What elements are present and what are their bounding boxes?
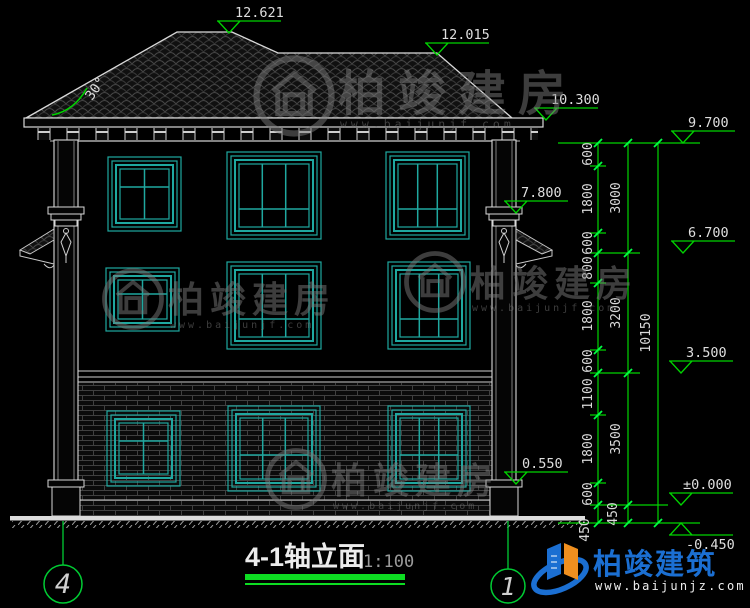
dimension-chain-outer: 3000 3200 3500 450 10150: [606, 182, 654, 525]
drawing-scale: 1:100: [363, 552, 414, 572]
watermark-url: www.baijunjf.com: [170, 320, 314, 331]
level-sill: 0.550: [522, 456, 563, 472]
ground-line: [10, 516, 585, 528]
dim-label: 1100: [581, 378, 596, 409]
side-canopy-right: [516, 229, 552, 268]
elevation-drawing: 30°: [0, 0, 750, 608]
watermark-brand: 柏竣建房: [338, 68, 578, 121]
axis-number-left: 4: [55, 569, 71, 600]
level-floor3: 6.700: [688, 225, 729, 241]
window-2f-right: [388, 262, 470, 349]
dim-label: 600: [581, 231, 596, 254]
watermark-brand: 柏竣建房: [331, 460, 499, 501]
ground-hatch: [12, 521, 583, 528]
brand-url: www.baijunjz.com: [595, 579, 746, 593]
elevation-drawing-canvas: 30°: [0, 0, 750, 608]
watermark-url: www.baijunjf.com: [472, 303, 616, 314]
dim-label: 3000: [609, 182, 624, 213]
drawing-title-block: 4-1轴立面 1:100: [245, 541, 414, 585]
axis-number-right: 1: [500, 572, 515, 601]
watermark-url: www.baijunjf.com: [340, 117, 515, 131]
watermark-url: www.baijunjf.com: [333, 501, 477, 512]
level-plate: 9.700: [688, 115, 729, 131]
window-3f-center: [227, 152, 321, 239]
dim-label: 450: [578, 518, 593, 541]
title-underline-thick: [245, 574, 405, 580]
watermark-brand: 柏竣建房: [168, 279, 336, 320]
level-zero: ±0.000: [683, 477, 732, 493]
brand-logo-icon: [529, 543, 591, 599]
level-floor2: 3.500: [686, 345, 727, 361]
drawing-title: 4-1轴立面: [245, 541, 365, 572]
brand-footer: 柏竣建筑 www.baijunjz.com: [529, 543, 746, 599]
dim-label: 3500: [609, 423, 624, 454]
window-3f-left: [108, 157, 181, 231]
axis-left: 4: [44, 521, 82, 603]
watermark-brand: 柏竣建房: [470, 263, 638, 304]
dimension-lines: [558, 143, 700, 523]
level-ridge-main: 12.621: [235, 5, 284, 21]
window-3f-right: [386, 152, 469, 239]
dim-label: 1800: [581, 433, 596, 464]
axis-right: 1: [491, 521, 525, 603]
dim-label: 1800: [581, 183, 596, 214]
level-ridge-secondary: 12.015: [441, 27, 490, 43]
dimension-chain-inner: 600 1800 600 800 1800 600 1100 1800 600 …: [578, 142, 596, 541]
dim-label: 600: [581, 349, 596, 372]
dim-label: 600: [581, 482, 596, 505]
floor-band: [55, 371, 515, 382]
side-canopy-left: [20, 229, 54, 268]
dim-total-label: 10150: [639, 313, 654, 352]
dim-label: 450: [606, 502, 621, 525]
level-canopy: 7.800: [521, 185, 562, 201]
brand-name: 柏竣建筑: [593, 547, 717, 581]
title-underline-thin: [245, 583, 405, 585]
dim-label: 600: [581, 142, 596, 165]
